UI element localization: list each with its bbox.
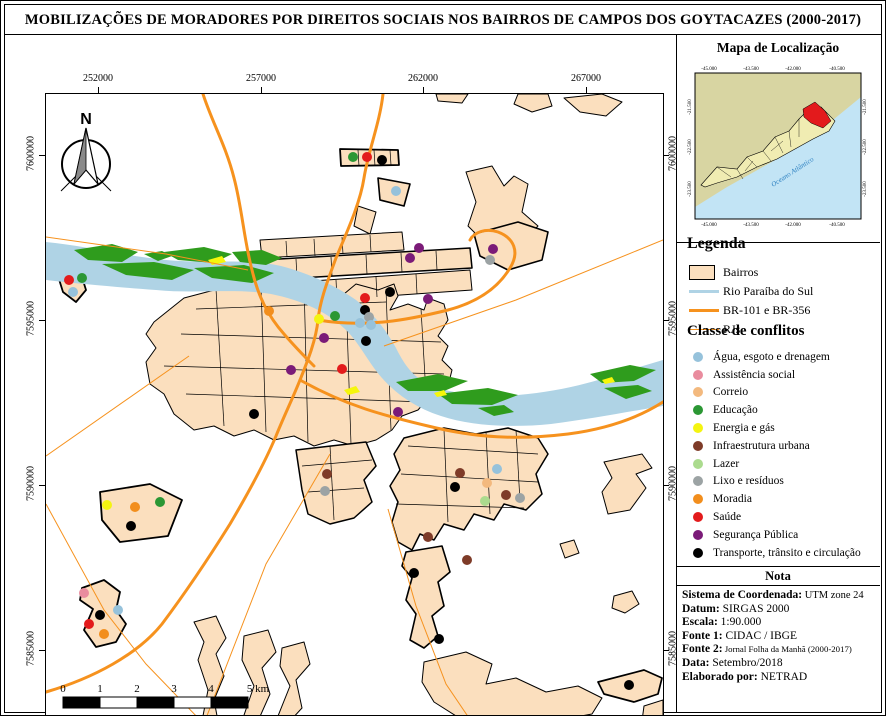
conflict-marker-infraestrutura (462, 555, 472, 565)
svg-text:-21.500: -21.500 (863, 99, 868, 115)
north-label: N (80, 111, 92, 128)
conflict-marker-transporte (249, 409, 259, 419)
conflict-marker-educacao (77, 273, 87, 283)
conflict-marker-lazer (480, 496, 490, 506)
conflict-marker-moradia (99, 629, 109, 639)
nota-label: Fonte 1: (682, 630, 723, 642)
conflict-class-item: Água, esgoto e drenagem (693, 348, 881, 366)
nota-box: Nota Sistema de Coordenada: UTM zone 24D… (676, 566, 880, 712)
grid-label-top: 267000 (556, 73, 616, 84)
conflict-marker-agua (355, 318, 365, 328)
svg-text:-21.500: -21.500 (688, 99, 693, 115)
scalebar-label: 0 (60, 683, 66, 695)
conflict-class-item: Moradia (693, 490, 881, 508)
class-color-dot (693, 387, 703, 397)
conflict-marker-transporte (434, 634, 444, 644)
locator-map-title: Mapa de Localização (676, 40, 880, 56)
bairros-swatch (689, 265, 723, 280)
class-color-dot (693, 459, 703, 469)
svg-text:-22.500: -22.500 (688, 139, 693, 155)
conflict-marker-educacao (348, 152, 358, 162)
class-color-dot (693, 405, 703, 415)
svg-text:-43.500: -43.500 (743, 67, 759, 72)
nota-value: NETRAD (758, 671, 808, 683)
conflict-marker-lixo (320, 486, 330, 496)
nota-label: Elaborado por: (682, 671, 758, 683)
nota-label: Fonte 2: (682, 643, 723, 655)
conflict-marker-energia (314, 314, 324, 324)
class-color-dot (693, 441, 703, 451)
locator-map: Oceano Atlântico -45.000-43.500-42.000-4… (687, 61, 869, 233)
conflict-class-item: Energia e gás (693, 419, 881, 437)
conflict-marker-transporte (126, 521, 136, 531)
legend-heading: Legenda (687, 235, 746, 253)
nota-row: Elaborado por: NETRAD (682, 671, 880, 685)
scalebar-label: 4 (208, 683, 214, 695)
conflict-marker-educacao (330, 311, 340, 321)
class-label: Assistência social (713, 369, 795, 381)
conflict-marker-seguranca (423, 294, 433, 304)
conflict-class-item: Assistência social (693, 366, 881, 384)
map-frame: N 012345 km (45, 93, 664, 716)
conflict-marker-correio (482, 478, 492, 488)
class-label: Transporte, trânsito e circulação (713, 547, 861, 559)
legend-item: Bairros (689, 263, 879, 282)
conflict-marker-agua (68, 287, 78, 297)
conflict-marker-lixo (515, 493, 525, 503)
conflict-marker-lixo (485, 255, 495, 265)
class-label: Infraestrutura urbana (713, 440, 810, 452)
conflict-marker-seguranca (414, 243, 424, 253)
conflict-class-list: Água, esgoto e drenagemAssistência socia… (693, 348, 881, 562)
scale-bar: 012345 km (60, 683, 269, 708)
north-arrow: N (61, 111, 111, 191)
svg-text:-23.500: -23.500 (688, 181, 693, 197)
nota-label: Sistema de Coordenada: (682, 589, 802, 601)
conflict-marker-saude (362, 152, 372, 162)
conflict-marker-seguranca (319, 333, 329, 343)
nota-row: Sistema de Coordenada: UTM zone 24 (682, 589, 880, 603)
conflict-class-item: Educação (693, 401, 881, 419)
conflict-marker-moradia (130, 502, 140, 512)
page-title: MOBILIZAÇÕES DE MORADORES POR DIREITOS S… (25, 12, 861, 29)
class-label: Moradia (713, 493, 752, 505)
conflict-marker-transporte (624, 680, 634, 690)
legend-item: BR-101 e BR-356 (689, 301, 879, 320)
map-area: 2520002570002620002670002520002570002620… (4, 34, 678, 713)
conflict-marker-saude (337, 364, 347, 374)
line-swatch (689, 290, 723, 293)
conflict-marker-transporte (361, 336, 371, 346)
nota-row: Fonte 1: CIDAC / IBGE (682, 630, 880, 644)
conflict-marker-transporte (450, 482, 460, 492)
class-color-dot (693, 370, 703, 380)
nota-value: SIRGAS 2000 (720, 603, 790, 615)
nota-value: UTM zone 24 (802, 590, 864, 601)
class-label: Educação (713, 404, 758, 416)
svg-text:-45.000: -45.000 (701, 67, 717, 72)
conflict-marker-saude (64, 275, 74, 285)
class-label: Saúde (713, 511, 741, 523)
class-color-dot (693, 548, 703, 558)
conflict-marker-seguranca (286, 365, 296, 375)
grid-label-left: 7585000 (26, 619, 37, 679)
nota-value: CIDAC / IBGE (723, 630, 797, 642)
fill-swatch (689, 265, 715, 280)
conflict-marker-seguranca (488, 244, 498, 254)
conflict-marker-transporte (377, 155, 387, 165)
svg-text:-23.500: -23.500 (863, 181, 868, 197)
svg-text:-43.500: -43.500 (743, 223, 759, 228)
nota-label: Datum: (682, 603, 720, 615)
grid-label-left: 7595000 (26, 289, 37, 349)
conflict-class-item: Transporte, trânsito e circulação (693, 544, 881, 562)
conflict-class-item: Lixo e resíduos (693, 473, 881, 491)
svg-text:-22.500: -22.500 (863, 139, 868, 155)
scalebar-label: 1 (97, 683, 103, 695)
class-color-dot (693, 494, 703, 504)
nota-label: Escala: (682, 616, 718, 628)
main-map: N 012345 km (46, 94, 663, 716)
conflict-marker-infraestrutura (322, 469, 332, 479)
conflict-class-item: Saúde (693, 508, 881, 526)
conflict-marker-agua (391, 186, 401, 196)
conflict-marker-moradia (264, 306, 274, 316)
line-swatch (689, 309, 723, 312)
conflict-marker-seguranca (393, 407, 403, 417)
class-color-dot (693, 423, 703, 433)
nota-row: Escala: 1:90.000 (682, 616, 880, 630)
conflict-marker-infraestrutura (455, 468, 465, 478)
grid-label-left: 7600000 (26, 124, 37, 184)
grid-label-top: 262000 (393, 73, 453, 84)
class-color-dot (693, 352, 703, 362)
class-label: Água, esgoto e drenagem (713, 351, 830, 363)
nota-heading: Nota (676, 567, 880, 586)
line-swatch (689, 309, 719, 312)
class-label: Lazer (713, 458, 739, 470)
conflict-marker-saude (84, 619, 94, 629)
map-layout-page: MOBILIZAÇÕES DE MORADORES POR DIREITOS S… (0, 0, 886, 716)
class-label: Correio (713, 386, 748, 398)
conflict-class-item: Lazer (693, 455, 881, 473)
class-color-dot (693, 476, 703, 486)
conflict-class-item: Infraestrutura urbana (693, 437, 881, 455)
conflict-marker-saude (360, 293, 370, 303)
svg-text:-45.000: -45.000 (701, 223, 717, 228)
nota-rows: Sistema de Coordenada: UTM zone 24Datum:… (676, 586, 880, 684)
conflict-marker-transporte (409, 568, 419, 578)
class-color-dot (693, 512, 703, 522)
nota-row: Fonte 2: Jornal Folha da Manhã (2000-201… (682, 643, 880, 657)
svg-text:-40.500: -40.500 (829, 223, 845, 228)
scalebar-label: 3 (171, 683, 177, 695)
conflict-marker-infraestrutura (423, 532, 433, 542)
conflict-marker-educacao (155, 497, 165, 507)
conflict-marker-agua (366, 320, 376, 330)
scalebar-unit: 5 km (247, 683, 270, 695)
class-label: Lixo e resíduos (713, 475, 784, 487)
legend-item-label: BR-101 e BR-356 (723, 303, 810, 318)
conflict-marker-energia (102, 500, 112, 510)
svg-text:-42.000: -42.000 (785, 67, 801, 72)
svg-text:-40.500: -40.500 (829, 67, 845, 72)
conflict-marker-agua (113, 605, 123, 615)
conflict-marker-transporte (385, 287, 395, 297)
class-label: Energia e gás (713, 422, 775, 434)
class-color-dot (693, 530, 703, 540)
nota-label: Data: (682, 657, 709, 669)
svg-text:-42.000: -42.000 (785, 223, 801, 228)
conflict-marker-assistencia (79, 588, 89, 598)
conflict-class-item: Segurança Pública (693, 526, 881, 544)
nota-value: 1:90.000 (718, 616, 761, 628)
nota-value: Jornal Folha da Manhã (2000-2017) (723, 644, 852, 654)
grid-label-top: 257000 (231, 73, 291, 84)
nota-row: Datum: SIRGAS 2000 (682, 603, 880, 617)
conflict-marker-agua (492, 464, 502, 474)
scalebar-label: 2 (134, 683, 140, 695)
classes-heading: Classe de conflitos (687, 323, 805, 340)
conflict-marker-transporte (95, 610, 105, 620)
conflict-marker-seguranca (405, 253, 415, 263)
legend-item-label: Bairros (723, 265, 758, 280)
conflict-marker-infraestrutura (501, 490, 511, 500)
grid-label-left: 7590000 (26, 454, 37, 514)
legend-item-label: Rio Paraíba do Sul (723, 284, 813, 299)
line-swatch (689, 290, 719, 293)
locator-map-box: Mapa de Localização Oceano Atlântico (676, 34, 880, 243)
class-label: Segurança Pública (713, 529, 798, 541)
legend-item: Rio Paraíba do Sul (689, 282, 879, 301)
title-box: MOBILIZAÇÕES DE MORADORES POR DIREITOS S… (4, 4, 882, 36)
grid-label-top: 252000 (68, 73, 128, 84)
nota-value: Setembro/2018 (709, 657, 782, 669)
conflict-class-item: Correio (693, 384, 881, 402)
nota-row: Data: Setembro/2018 (682, 657, 880, 671)
